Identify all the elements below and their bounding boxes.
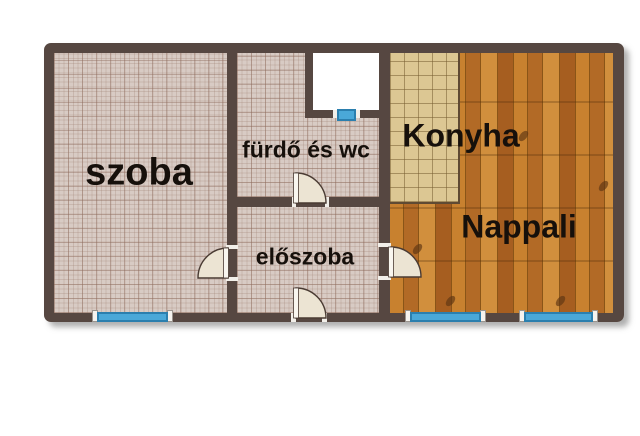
livingroom-door-jamb-top xyxy=(378,243,391,247)
livingroom-window1 xyxy=(410,312,481,322)
floorplan-page: { "plan": { "type": "apartment-floor-pla… xyxy=(0,0,640,436)
livingroom-window2 xyxy=(524,312,593,322)
wood-knot xyxy=(411,242,424,256)
floorplan: szoba fürdő és wc előszoba Konyha Nappal… xyxy=(44,43,624,322)
label-nappali: Nappali xyxy=(461,209,577,246)
wood-knot xyxy=(444,294,457,308)
light-well-left-wall xyxy=(305,53,313,118)
wood-knot xyxy=(597,179,610,193)
label-eloszoba: előszoba xyxy=(256,244,354,271)
entrance-door-jamb-right xyxy=(322,313,327,322)
bathroom-window xyxy=(337,109,356,121)
label-konyha: Konyha xyxy=(402,118,519,155)
szoba-door-jamb-bottom xyxy=(226,277,238,281)
bathroom-door-jamb-left xyxy=(292,197,296,207)
livingroom-door-jamb-bottom xyxy=(378,276,391,280)
szoba-door-jamb-top xyxy=(226,245,238,249)
entrance-door-jamb-left xyxy=(291,313,296,322)
light-well xyxy=(313,53,379,110)
label-furdo-es-wc: fürdő és wc xyxy=(242,137,370,164)
bathroom-door-jamb-right xyxy=(325,197,329,207)
wood-knot xyxy=(554,294,567,308)
bathroom-window-jamb-right xyxy=(356,110,360,118)
szoba-window xyxy=(97,312,168,322)
label-szoba: szoba xyxy=(85,152,193,195)
